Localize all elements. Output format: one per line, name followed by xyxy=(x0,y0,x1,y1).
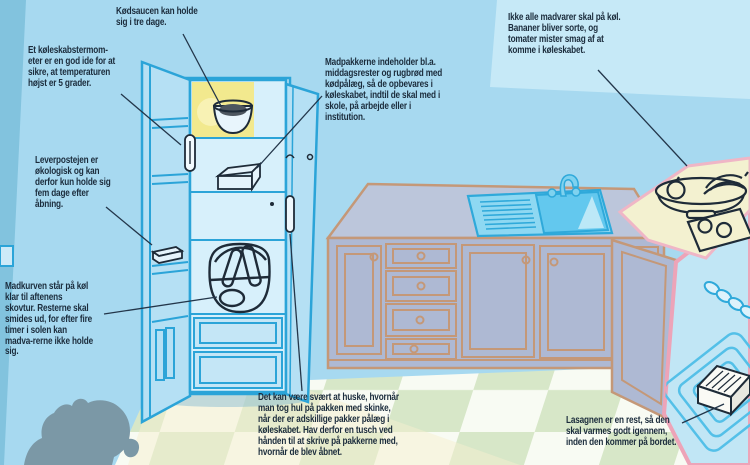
faucet-handle-left xyxy=(548,189,556,197)
annotation-thermometer: Et køleskabstermom- eter er en god ide f… xyxy=(28,46,192,90)
annotation-room-temp-foods: Ikke alle madvarer skal på køl. Bananer … xyxy=(508,13,672,57)
door-pin xyxy=(270,202,274,206)
annotation-lunch-boxes: Madpakkerne indeholder bl.a. middagsrest… xyxy=(325,58,489,123)
kitchen-infographic: Kødsaucen kan holde sig i tre dage. Et k… xyxy=(0,0,750,465)
annotation-meat-sauce: Kødsaucen kan holde sig i tre dage. xyxy=(116,7,280,29)
annotation-liver-pate: Leverpostejen er økologisk og kan derfor… xyxy=(35,156,199,211)
annotation-picnic-basket: Madkurven står på køl klar til aftenens … xyxy=(5,282,169,358)
marker-pen xyxy=(286,196,294,232)
tomato xyxy=(717,223,731,237)
refrigerator xyxy=(142,62,318,422)
faucet-handle-right xyxy=(572,188,580,196)
meat-sauce-bowl xyxy=(214,101,252,134)
tomato xyxy=(699,220,712,233)
annotation-marker-pen: Det kan være svært at huske, hvornår man… xyxy=(258,393,422,458)
fridge-interior xyxy=(190,80,286,392)
pear xyxy=(668,182,685,199)
freezer-drawers xyxy=(194,318,282,388)
wall-socket xyxy=(0,246,13,266)
annotation-lasagna: Lasagnen er en rest, så den skal varmes … xyxy=(566,416,730,449)
